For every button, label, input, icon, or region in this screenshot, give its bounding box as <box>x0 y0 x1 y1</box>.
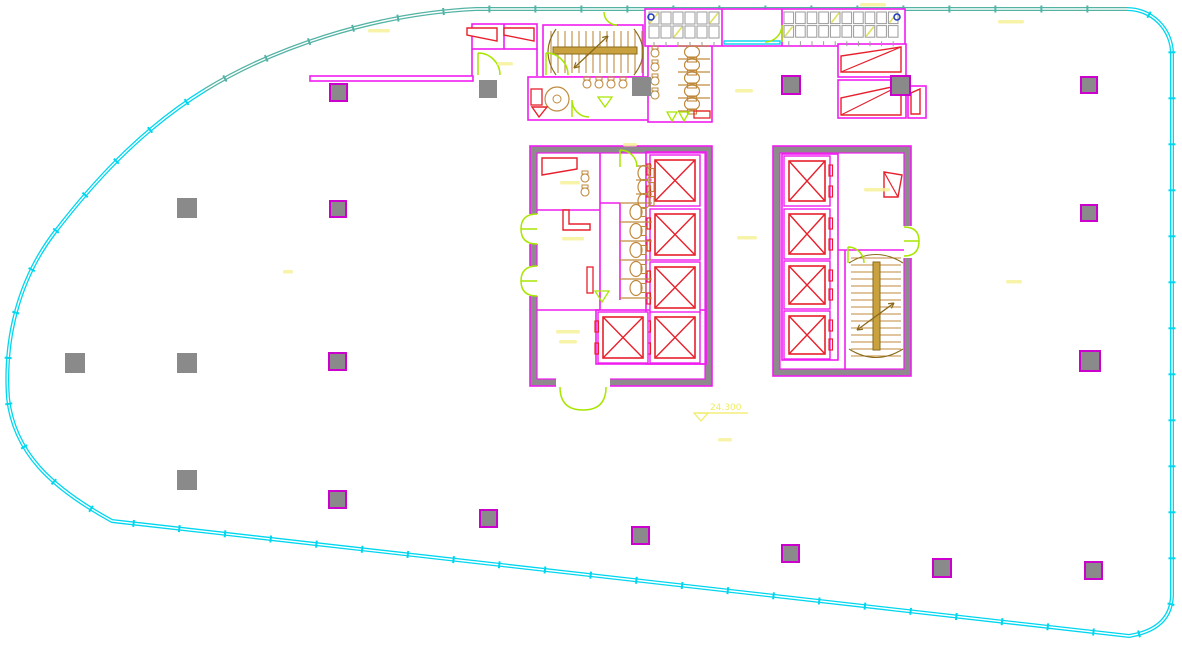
structural-column <box>177 353 197 373</box>
curtain-wall-cyan-mullion-tick <box>12 312 19 314</box>
curtain-wall-cyan-mullion-tick <box>179 525 180 532</box>
structural-column <box>933 559 951 577</box>
curtain-wall-cyan-mullion-tick <box>362 546 363 553</box>
curtain-wall-cyan-mullion-tick <box>1047 623 1048 630</box>
curtain-wall-cyan-mullion-tick <box>819 597 820 604</box>
curtain-wall-cyan-mullion-tick <box>316 541 317 548</box>
curtain-wall-cyan-mullion-tick <box>5 358 12 359</box>
faint-label <box>718 438 732 442</box>
level-marker-triangle <box>694 413 708 421</box>
faint-label <box>623 143 637 147</box>
structural-column <box>329 353 346 370</box>
structural-column <box>782 76 800 94</box>
structural-column <box>1081 77 1097 93</box>
structural-column <box>1080 351 1100 371</box>
faint-label <box>562 237 584 241</box>
faint-label <box>860 3 886 7</box>
curtain-wall-cyan-mullion-tick <box>270 535 271 542</box>
wall-opening <box>556 378 610 387</box>
curtain-wall-cyan-mullion-tick <box>727 587 728 594</box>
door-swing <box>478 53 500 75</box>
structural-column <box>1081 205 1097 221</box>
faint-label <box>864 188 890 192</box>
curtain-wall-cyan-mullion-tick <box>1002 618 1003 625</box>
structural-column <box>782 545 799 562</box>
curtain-wall-cyan-mullion-tick <box>545 566 546 573</box>
faint-label <box>737 236 757 240</box>
structural-column <box>479 80 497 98</box>
wall <box>310 76 473 81</box>
stair-rail <box>873 262 880 350</box>
faint-label <box>559 340 577 344</box>
curtain-wall-teal-mullion-tick <box>352 25 354 32</box>
curtain-wall-cyan-mullion-tick <box>133 520 134 527</box>
faint-label <box>998 20 1024 24</box>
curtain-wall-cyan-mullion-tick <box>910 608 911 615</box>
curtain-wall-cyan-mullion-tick <box>773 592 774 599</box>
faint-label <box>556 330 580 334</box>
structural-column <box>330 84 347 101</box>
wall-opening <box>903 226 912 258</box>
curtain-wall-cyan-mullion-tick <box>5 403 12 404</box>
faint-label <box>497 62 513 66</box>
door-swing <box>560 387 606 410</box>
cad-floor-plan: 24.300 <box>0 0 1182 646</box>
curtain-wall-teal-mullion-tick <box>397 15 398 22</box>
curtain-wall-cyan-mullion-tick <box>1168 603 1175 605</box>
structural-column <box>177 198 197 218</box>
curtain-wall-cyan-mullion-tick <box>682 582 683 589</box>
structural-column <box>65 353 85 373</box>
structural-column <box>1085 562 1102 579</box>
floor-plan-canvas: 24.300 <box>0 0 1182 646</box>
curtain-wall-cyan-mullion-tick <box>225 530 226 537</box>
faint-label <box>1006 280 1022 284</box>
red-equipment <box>911 89 920 114</box>
door-swing <box>604 12 617 25</box>
structural-column <box>632 77 651 96</box>
structural-column <box>329 491 346 508</box>
structural-column <box>330 201 346 217</box>
curtain-wall-cyan-mullion-tick <box>636 577 637 584</box>
curtain-wall-cyan-mullion-tick <box>453 556 454 563</box>
curtain-wall-cyan-mullion-tick <box>407 551 408 558</box>
faint-label <box>560 181 580 185</box>
faint-label <box>735 89 753 93</box>
curtain-wall-cyan-mullion-tick <box>1138 630 1140 637</box>
structural-column <box>480 510 497 527</box>
curtain-wall-cyan-mullion-tick <box>1093 629 1094 636</box>
structural-column <box>632 527 649 544</box>
curtain-wall-cyan-mullion-tick <box>590 572 591 579</box>
faint-label <box>283 270 293 274</box>
structural-column <box>177 470 197 490</box>
level-label: 24.300 <box>710 403 742 413</box>
curtain-wall-cyan-mullion-tick <box>956 613 957 620</box>
curtain-wall-teal-mullion-tick <box>443 8 444 15</box>
faint-label <box>368 29 390 33</box>
structural-column <box>891 76 910 95</box>
curtain-wall-cyan-mullion-tick <box>865 603 866 610</box>
curtain-wall-cyan-mullion-tick <box>499 561 500 568</box>
